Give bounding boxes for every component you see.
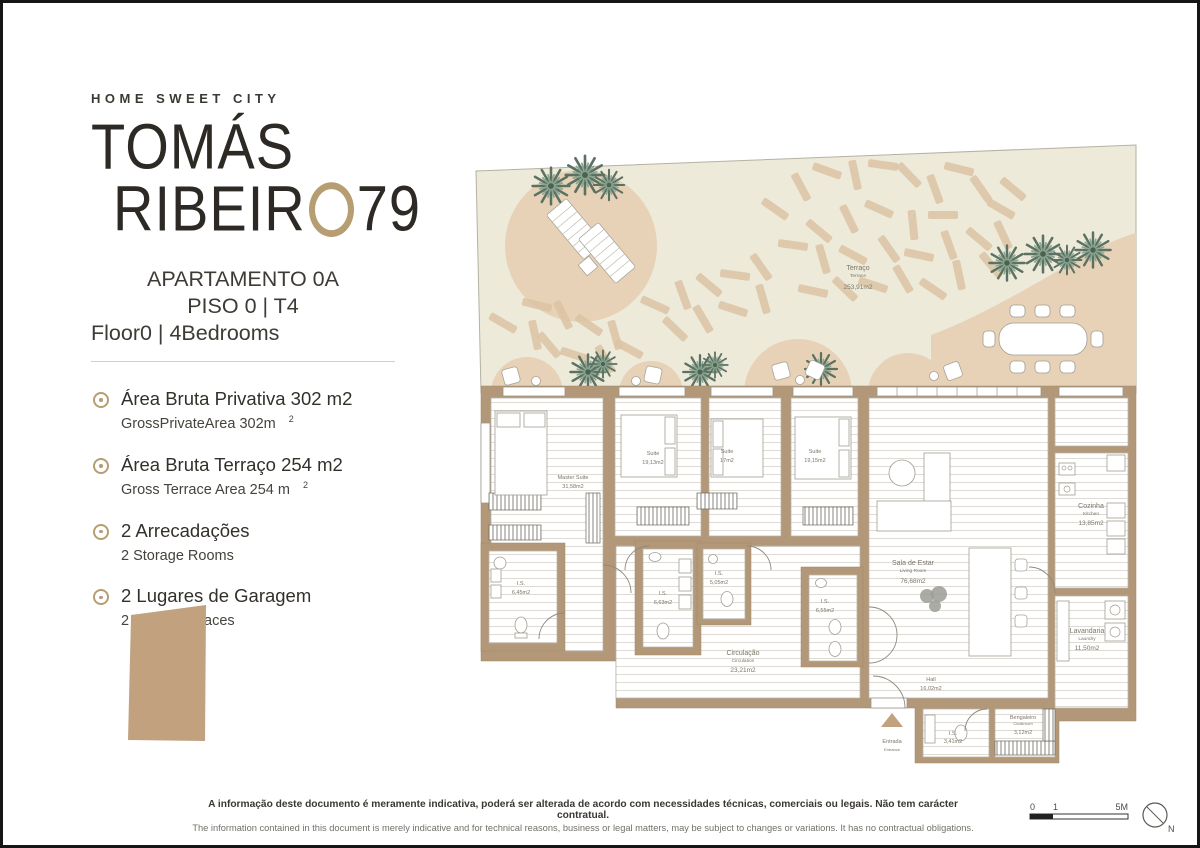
is5-area: 3,41m2 — [944, 739, 962, 745]
is4-area: 6,55m2 — [816, 608, 834, 614]
suite3-label: Suite — [721, 449, 734, 455]
living-label-en: Living Room — [900, 568, 927, 574]
hall-area: 16,02m2 — [920, 686, 941, 692]
master-label: Master Suite — [558, 475, 589, 481]
floor-plan: Terraço Terrace 253,91m2 — [3, 3, 1200, 848]
entrance-label-en: Entrance — [884, 747, 901, 752]
scale-bar-filled — [1030, 814, 1053, 819]
round-table — [889, 460, 915, 486]
apartment-plan: Entrada Entrance Master Suite 31,58m2 Su… — [481, 386, 1136, 763]
disclaimer: A informação deste documento é meramente… — [183, 799, 983, 833]
entrance-label-pt: Entrada — [882, 739, 902, 745]
is5-label: I.S. — [949, 731, 958, 737]
living-area: 76,68m2 — [900, 578, 926, 585]
suite2-area: 19,13m2 — [642, 460, 663, 466]
suite4-bed — [795, 417, 851, 479]
suite3-bed — [711, 419, 763, 477]
terrace-label-en: Terrace — [850, 273, 866, 279]
living-label: Sala de Estar — [892, 560, 935, 567]
hall-label: Hall — [926, 677, 935, 683]
is3-area: 5,05m2 — [710, 580, 728, 586]
entrance-arrow-icon — [881, 713, 903, 727]
master-bed — [495, 411, 547, 495]
room-pantry — [1055, 398, 1128, 446]
kitchen-area: 13,85m2 — [1078, 520, 1104, 527]
is4-label: I.S. — [821, 599, 830, 605]
laundry-label-en: Laundry — [1078, 636, 1096, 642]
scale-bar: 0 1 5M N — [1013, 793, 1198, 843]
terrace-label-area: 253,91m2 — [844, 284, 873, 291]
north-arrow-icon: N — [1143, 803, 1175, 834]
kitchen-label-en: Kitchen — [1083, 511, 1099, 517]
laundry-label: Lavandaria — [1070, 628, 1105, 635]
circulation-label-en: Circulation — [732, 658, 755, 664]
scale-tick-5m: 5M — [1115, 802, 1128, 812]
suite4-label: Suite — [809, 449, 822, 455]
is1-label: I.S. — [517, 581, 526, 587]
circulation-label: Circulação — [726, 650, 759, 657]
is3-label: I.S. — [715, 571, 724, 577]
scale-tick-0: 0 — [1030, 802, 1035, 812]
terrace-label-pt: Terraço — [846, 265, 869, 272]
laundry-area: 11,50m2 — [1075, 645, 1100, 652]
circulation-area: 23,21m2 — [730, 667, 756, 674]
master-area: 31,58m2 — [562, 484, 583, 490]
suite3-area: 17m2 — [720, 458, 734, 464]
kitchen-island — [969, 548, 1011, 656]
disclaimer-pt: A informação deste documento é meramente… — [183, 799, 983, 821]
is2-area: 6,63m2 — [654, 600, 672, 606]
brochure-page: HOME SWEET CITY TOMÁS RIBEIR 79 APARTAME… — [0, 0, 1200, 848]
suite2-label: Suite — [647, 451, 660, 457]
cloak-label-en: Cloakroom — [1013, 721, 1033, 726]
scale-tick-1: 1 — [1053, 802, 1058, 812]
north-label: N — [1168, 824, 1175, 834]
kitchen-label: Cozinha — [1078, 503, 1104, 510]
sofa — [877, 501, 951, 531]
cloak-area: 3,12m2 — [1014, 730, 1032, 736]
suite4-area: 19,15m2 — [804, 458, 825, 464]
terrace: Terraço Terrace 253,91m2 — [476, 145, 1136, 393]
is2-label: I.S. — [659, 591, 668, 597]
room-living-hall — [869, 398, 1048, 698]
suite2-bed — [621, 415, 677, 477]
is1-area: 6,45m2 — [512, 590, 530, 596]
disclaimer-en: The information contained in this docume… — [183, 823, 983, 833]
